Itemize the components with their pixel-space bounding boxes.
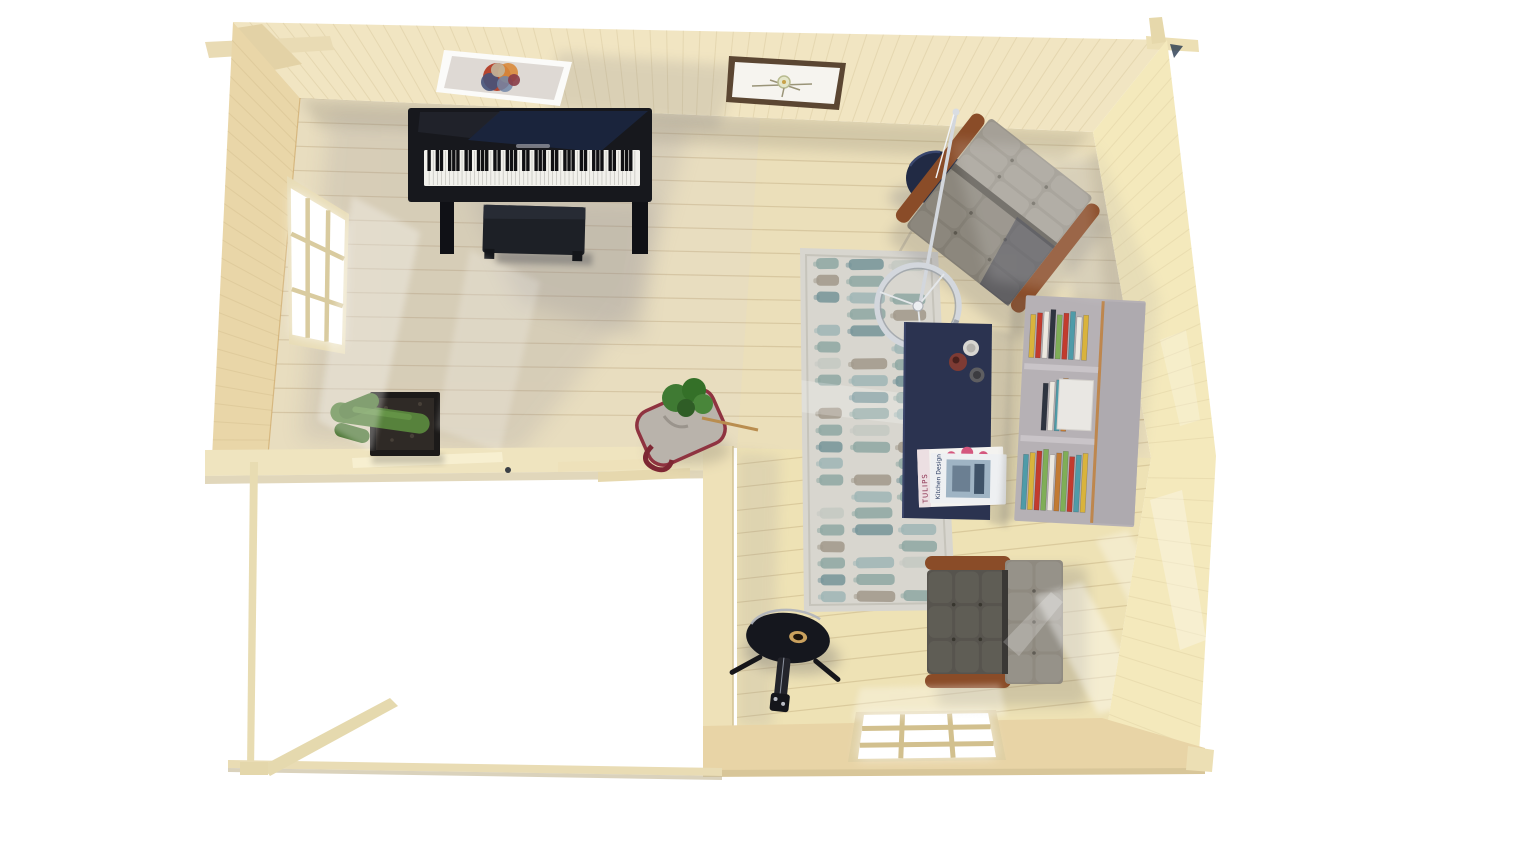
guitar-headstock (769, 693, 790, 713)
piano-bench (482, 205, 593, 266)
partition-wall (703, 446, 733, 762)
magazine-top: Kitchen Design (930, 453, 1007, 504)
cup-inner (967, 344, 976, 353)
magazine-photo-detail2 (974, 464, 985, 494)
framed-art-botanical (726, 56, 846, 110)
magazines: TULIPS Kitchen Design (917, 445, 1008, 507)
magazine-top-title: Kitchen Design (935, 454, 943, 499)
terrace-corner-block (240, 762, 268, 775)
terrace-beams (228, 462, 722, 780)
lamp-hub (913, 301, 923, 311)
chair2-arm-top (925, 556, 1011, 570)
vase-mouth (953, 357, 960, 364)
magazine-photo-detail (952, 465, 970, 491)
coffee-table: TULIPS Kitchen Design (903, 322, 1012, 528)
chair2-seat-tufts (929, 572, 1006, 673)
log-tail-top-right-2 (1149, 17, 1166, 44)
terrace-left-edge (247, 462, 258, 772)
door-handle (505, 467, 511, 473)
cabin-scene: TULIPS Kitchen Design (0, 0, 1536, 864)
storage-box (1057, 379, 1094, 431)
bowl-inner (973, 371, 981, 379)
piano-brand-plate (516, 144, 550, 148)
bookshelf (1000, 294, 1146, 527)
bench-leg (572, 251, 582, 261)
log-tail-bottom-right (1186, 746, 1214, 772)
lamp-joint (953, 109, 960, 116)
chair2-crease (1002, 570, 1008, 674)
render-canvas: TULIPS Kitchen Design (0, 0, 1536, 864)
magazine-bottom-title: TULIPS (921, 473, 930, 504)
corner-notch-shadow (1170, 44, 1183, 58)
